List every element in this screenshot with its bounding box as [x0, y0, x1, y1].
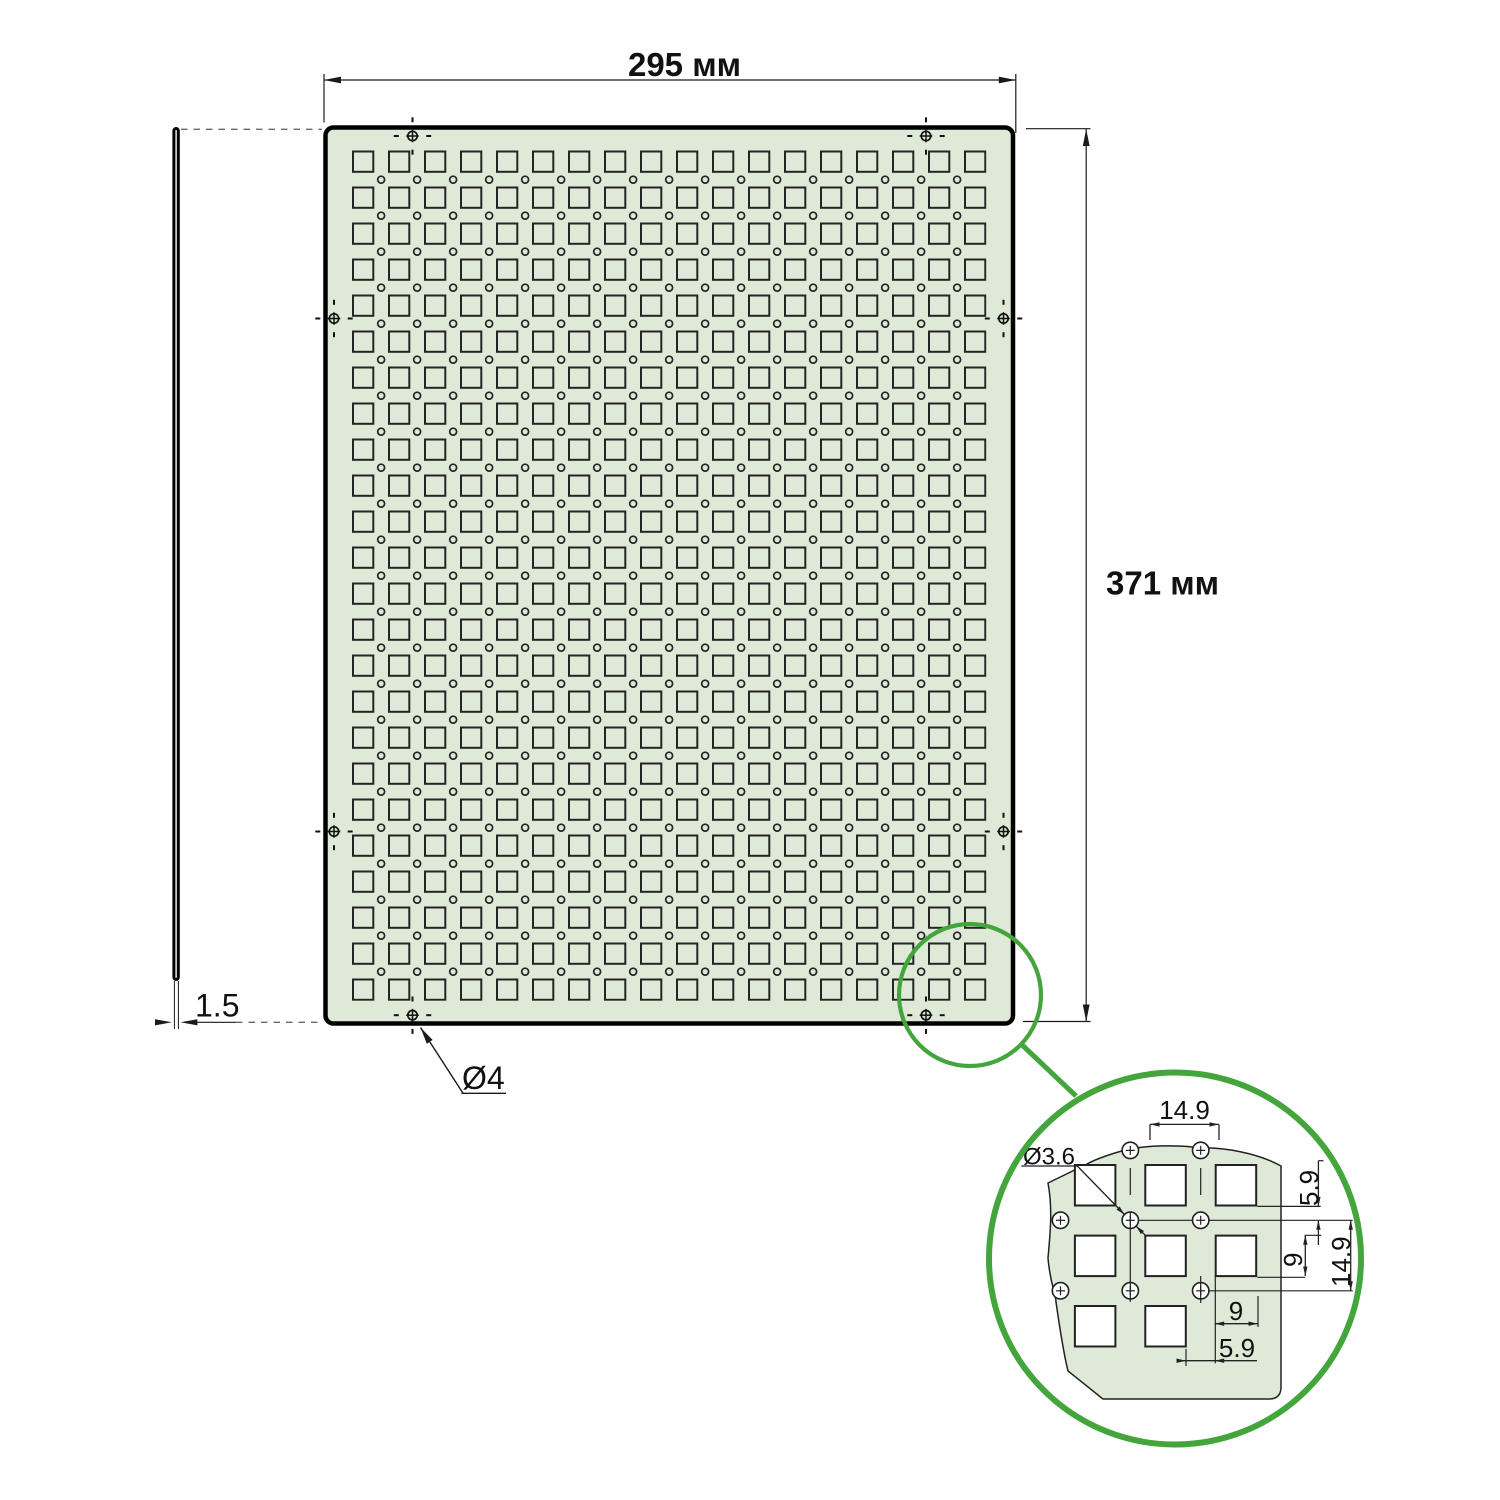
- svg-text:Ø4: Ø4: [462, 1060, 505, 1096]
- svg-text:9: 9: [1278, 1253, 1308, 1267]
- svg-text:9: 9: [1229, 1296, 1243, 1326]
- svg-text:5.9: 5.9: [1219, 1333, 1255, 1363]
- svg-text:5.9: 5.9: [1294, 1170, 1324, 1206]
- svg-text:371 мм: 371 мм: [1106, 565, 1219, 602]
- svg-text:295 мм: 295 мм: [628, 46, 741, 83]
- svg-text:14.9: 14.9: [1326, 1236, 1356, 1287]
- svg-text:1.5: 1.5: [195, 988, 239, 1024]
- svg-text:14.9: 14.9: [1159, 1095, 1210, 1125]
